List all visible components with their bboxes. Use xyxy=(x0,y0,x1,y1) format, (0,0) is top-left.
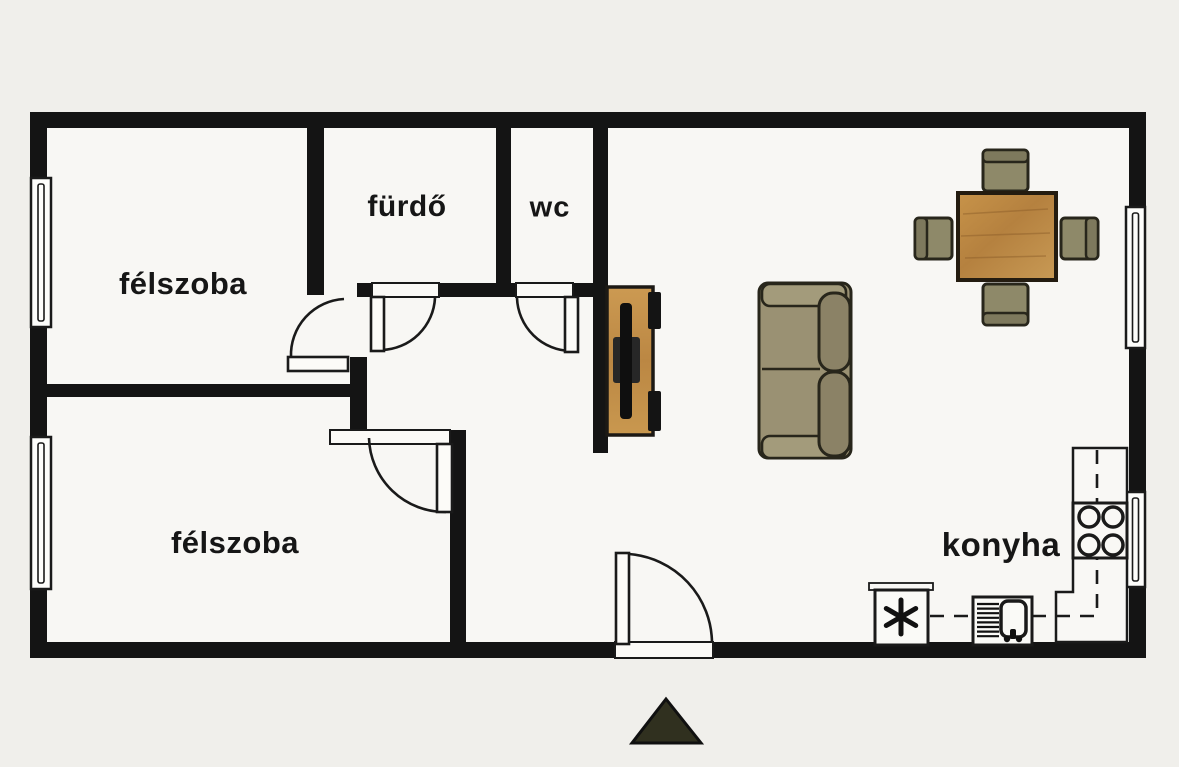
wall-felszoba2-top xyxy=(38,384,367,397)
chair-right-backrest xyxy=(1086,218,1098,259)
stove-burner xyxy=(1079,535,1099,555)
wall-bath-bottom-b xyxy=(439,283,517,297)
sink-tap xyxy=(1004,636,1010,642)
chair-left-backrest xyxy=(915,218,927,259)
wall-furdo-wc-separator xyxy=(496,126,511,283)
wall-bottom-left xyxy=(30,642,615,658)
threshold-furdo xyxy=(372,283,439,297)
window-kitchen-pane xyxy=(1133,498,1139,581)
sink-tap xyxy=(1016,636,1022,642)
door-felszoba1-leaf xyxy=(288,357,348,371)
door-entrance-leaf xyxy=(616,553,629,644)
sofa-back-cushion xyxy=(819,293,850,371)
stove-burner xyxy=(1079,507,1099,527)
dining-table xyxy=(958,193,1056,280)
chair-top-backrest xyxy=(983,150,1028,162)
window-felszoba2-pane xyxy=(38,443,44,583)
room-label-wc: wc xyxy=(530,192,571,225)
room-label-felszoba-2: félszoba xyxy=(171,525,299,561)
tv-screen xyxy=(620,303,632,419)
wall-top xyxy=(30,112,1146,128)
door-felszoba2-leaf xyxy=(437,444,452,512)
threshold-felszoba2 xyxy=(330,430,450,444)
wall-felszoba1-right xyxy=(307,126,324,295)
entrance-north-arrow xyxy=(632,699,701,743)
stove-burner xyxy=(1103,535,1123,555)
sofa-back-cushion xyxy=(819,372,850,456)
chair-bottom-backrest xyxy=(983,313,1028,325)
door-furdo-leaf xyxy=(371,297,384,351)
door-wc-leaf xyxy=(565,297,578,352)
room-label-furdo: fürdő xyxy=(367,190,446,224)
stove-burner xyxy=(1103,507,1123,527)
tv-speaker xyxy=(648,391,661,431)
window-felszoba1-pane xyxy=(38,184,44,321)
tv-speaker xyxy=(648,292,661,329)
floor-plan-image: félszoba fürdő wc félszoba konyha xyxy=(0,0,1179,767)
floor-plan-svg xyxy=(0,0,1179,767)
sink-faucet xyxy=(1010,629,1016,639)
room-label-felszoba-1: félszoba xyxy=(119,266,247,302)
threshold-wc xyxy=(516,283,573,297)
window-living-pane xyxy=(1133,213,1139,342)
room-label-konyha: konyha xyxy=(942,526,1061,564)
